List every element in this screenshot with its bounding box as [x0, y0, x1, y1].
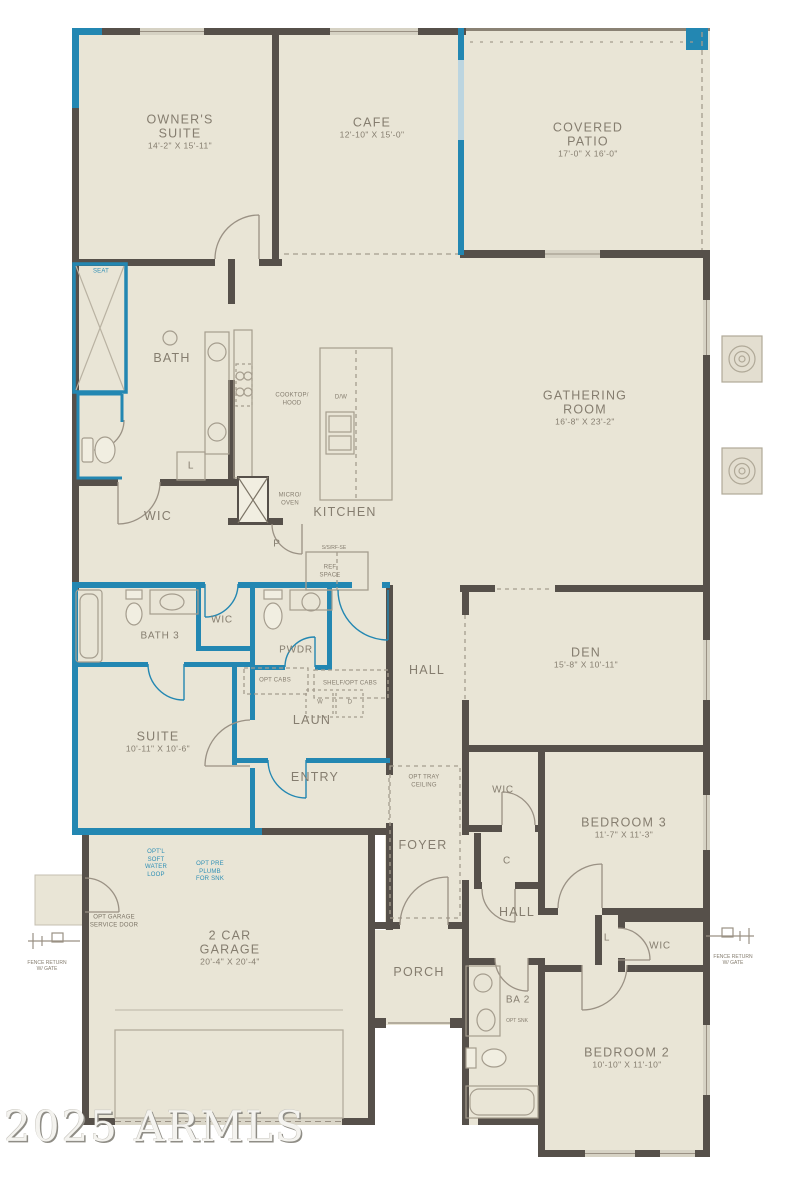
opt-cabs-note: OPT CABS [259, 677, 291, 685]
room-name: PWDR [279, 644, 313, 655]
ref-space-note: REF SPACE [316, 565, 344, 580]
room-name: GATHERING ROOM [530, 389, 640, 417]
oven-icon [238, 477, 268, 523]
washer-label: W [317, 699, 323, 707]
room-label-bath3: BATH 3 [140, 630, 179, 641]
room-name: COVERED PATIO [541, 121, 635, 149]
opt-preplumb-note: OPT PRE PLUMB FOR SNK [193, 861, 227, 884]
room-name: LAUN [293, 713, 331, 727]
room-name: HALL [499, 905, 535, 919]
room-name: FOYER [398, 838, 447, 852]
room-name: ENTRY [291, 770, 339, 784]
room-dims: 11'-7" X 11'-3" [581, 831, 667, 841]
room-label-wic-owner: WIC [144, 509, 172, 523]
room-label-porch: PORCH [393, 965, 444, 979]
room-name: WIC [649, 940, 671, 951]
room-label-pwdr: PWDR [279, 644, 313, 655]
room-name: BEDROOM 2 [584, 1046, 670, 1060]
room-label-bedroom3: BEDROOM 3 11'-7" X 11'-3" [581, 816, 667, 841]
room-dims: 16'-8" X 23'-2" [530, 418, 640, 428]
room-name: SUITE [126, 730, 190, 744]
seat-note: SEAT [93, 268, 109, 276]
linen-bath-label: L [188, 460, 194, 471]
room-label-suite: SUITE 10'-11" X 10'-6" [126, 730, 190, 755]
room-name: OWNER'S SUITE [134, 113, 226, 141]
room-label-hall-main: HALL [409, 663, 445, 677]
opt-soft-water-note: OPT'L SOFT WATER LOOP [138, 849, 174, 879]
room-label-cafe: CAFE 12'-10" X 15'-0" [340, 116, 405, 141]
room-dims: 17'-0" X 16'-0" [541, 150, 635, 160]
room-dims: 20'-4" X 20'-4" [192, 958, 268, 968]
opt-tray-note: OPT TRAY CEILING [405, 775, 443, 790]
room-label-garage: 2 CAR GARAGE 20'-4" X 20'-4" [192, 929, 268, 968]
dishwasher-note: D/W [335, 394, 347, 402]
room-name: WIC [492, 784, 514, 795]
opt-snk-note: OPT SNK [506, 1018, 528, 1024]
micro-oven-note: MICRO/ OVEN [274, 493, 306, 508]
coat-closet-label: C [503, 855, 511, 866]
room-label-laun: LAUN [293, 713, 331, 727]
room-label-entry: ENTRY [291, 770, 339, 784]
fence-return-note-right: FENCE RETURN W/ GATE [713, 954, 753, 966]
room-name: CAFE [340, 116, 405, 130]
opt-garage-service-door-note: OPT GARAGE SERVICE DOOR [84, 915, 144, 930]
room-dims: 15'-8" X 10'-11" [554, 661, 618, 671]
cooktop-hood-note: COOKTOP/ HOOD [271, 393, 313, 408]
room-dims: 14'-2" X 15'-11" [134, 142, 226, 152]
room-dims: 12'-10" X 15'-0" [340, 131, 405, 141]
room-label-wic-suite: WIC [211, 614, 233, 625]
room-name: HALL [409, 663, 445, 677]
floorplan-graphics [0, 0, 800, 1192]
armls-watermark: 2025 ARMLS [4, 1102, 306, 1151]
room-label-wic-bed3: WIC [492, 784, 514, 795]
floor-plan: OWNER'S SUITE 14'-2" X 15'-11" CAFE 12'-… [0, 0, 800, 1192]
fence-gate-icon-left [28, 933, 80, 949]
room-label-den: DEN 15'-8" X 10'-11" [554, 646, 618, 671]
room-name: 2 CAR GARAGE [192, 929, 268, 957]
room-label-bath: BATH [153, 351, 190, 365]
room-name: PORCH [393, 965, 444, 979]
room-dims: 10'-10" X 11'-10" [584, 1061, 670, 1071]
linen-hall-label: L [604, 932, 610, 943]
room-name: BA 2 [506, 994, 530, 1005]
room-label-bedroom2: BEDROOM 2 10'-10" X 11'-10" [584, 1046, 670, 1071]
room-label-covered-patio: COVERED PATIO 17'-0" X 16'-0" [541, 121, 635, 160]
room-label-owners-suite: OWNER'S SUITE 14'-2" X 15'-11" [134, 113, 226, 152]
room-label-kitchen: KITCHEN [313, 505, 376, 519]
room-label-gathering: GATHERING ROOM 16'-8" X 23'-2" [530, 389, 640, 428]
pantry-label: P [273, 538, 280, 549]
room-name: DEN [554, 646, 618, 660]
room-name: BATH [153, 351, 190, 365]
dryer-label: D [348, 699, 353, 707]
room-name: WIC [144, 509, 172, 523]
room-name: KITCHEN [313, 505, 376, 519]
fence-gate-icon-right [706, 928, 754, 944]
shelf-opt-cabs-note: SHELF/OPT CABS [323, 680, 377, 688]
ceiling-fixture-icon [722, 336, 762, 494]
ref-note: S/S/RF-SE [322, 545, 346, 551]
fence-return-note-left: FENCE RETURN W/ GATE [27, 960, 67, 972]
room-name: BATH 3 [140, 630, 179, 641]
room-label-foyer: FOYER [398, 838, 447, 852]
room-name: BEDROOM 3 [581, 816, 667, 830]
room-label-wic-bed2: WIC [649, 940, 671, 951]
room-dims: 10'-11" X 10'-6" [126, 745, 190, 755]
room-label-ba2: BA 2 [506, 994, 530, 1005]
room-label-hall-bed: HALL [499, 905, 535, 919]
room-name: WIC [211, 614, 233, 625]
